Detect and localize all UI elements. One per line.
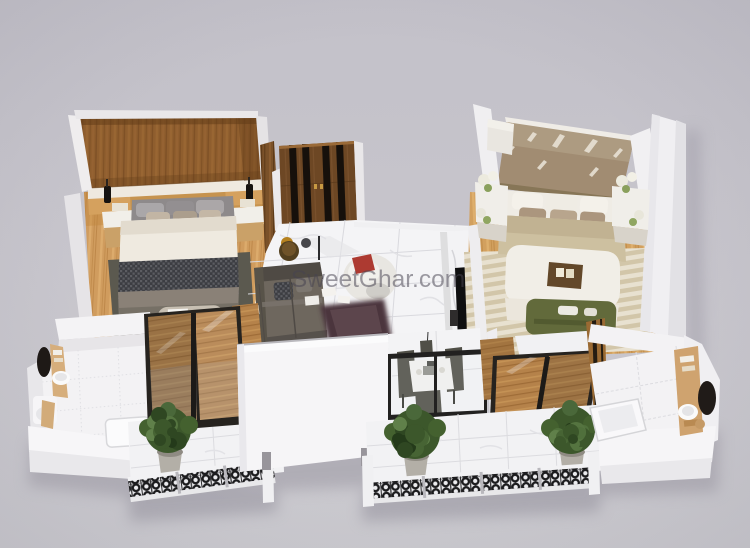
svg-text:SweetGhar.com: SweetGhar.com bbox=[291, 266, 465, 293]
